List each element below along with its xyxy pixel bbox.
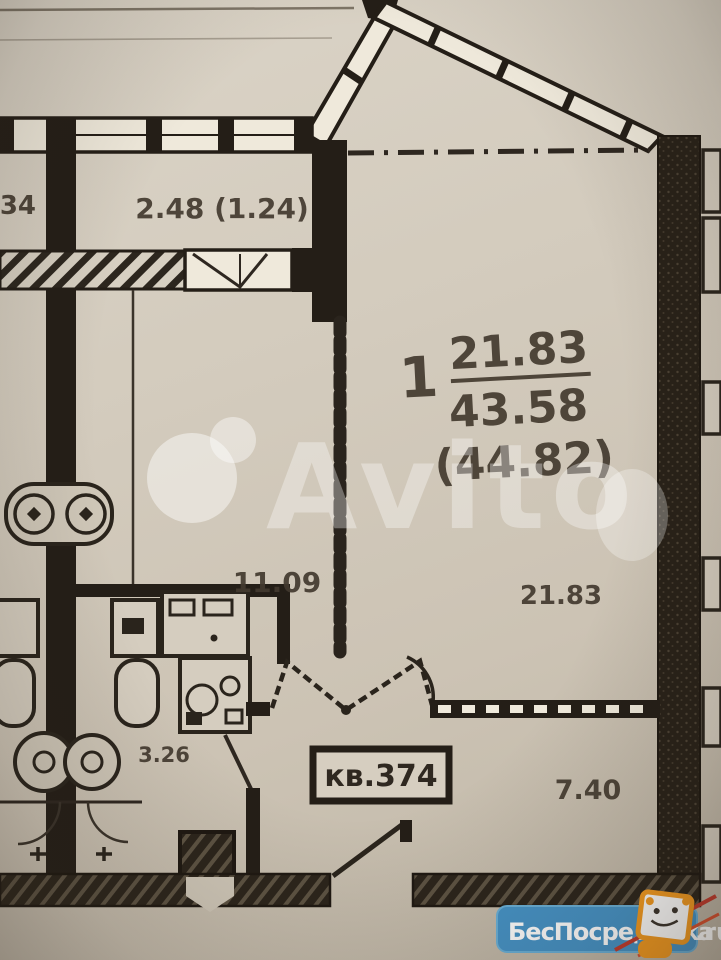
floor-plan-drawing: 2.48 (1.24) 34 11.09 21.83 3.26 7.40 1 2… <box>0 0 721 960</box>
entrance-door <box>333 824 403 876</box>
avito-watermark: Avito <box>147 417 668 561</box>
living-area: 21.83 <box>448 322 590 380</box>
double-door <box>246 657 433 716</box>
toilet <box>116 660 158 726</box>
kitchen-balcony-wall <box>0 248 312 292</box>
bathroom-door <box>225 735 252 791</box>
bathroom-area-label: 3.26 <box>138 743 190 767</box>
hall-living-partition <box>430 700 660 718</box>
living-room-area-label: 21.83 <box>520 581 602 611</box>
avito-logo-dot-small <box>210 417 256 463</box>
vent-duct-upper <box>6 484 112 544</box>
balcony-dimension: 2.48 (1.24) <box>135 192 309 225</box>
vent-shaft <box>180 832 234 878</box>
balcony-boundary-line <box>348 150 650 153</box>
right-edge-fragments <box>703 150 721 882</box>
apartment-number: кв.374 <box>324 759 437 794</box>
left-edge-dimension-fragment: 34 <box>0 191 36 221</box>
apartment-number-box: кв.374 <box>313 749 449 801</box>
badge-tld: .ru <box>695 918 721 946</box>
upper-balcony-lines <box>0 8 354 40</box>
bay-window <box>306 0 662 153</box>
hall-area-label: 7.40 <box>555 775 622 806</box>
rooms-count: 1 <box>398 345 440 412</box>
hall-walls <box>180 788 260 878</box>
floor-plan-photo: 2.48 (1.24) 34 11.09 21.83 3.26 7.40 1 2… <box>0 0 721 960</box>
avito-watermark-text: Avito <box>266 418 638 556</box>
kitchen-area-label: 11.09 <box>233 566 322 599</box>
